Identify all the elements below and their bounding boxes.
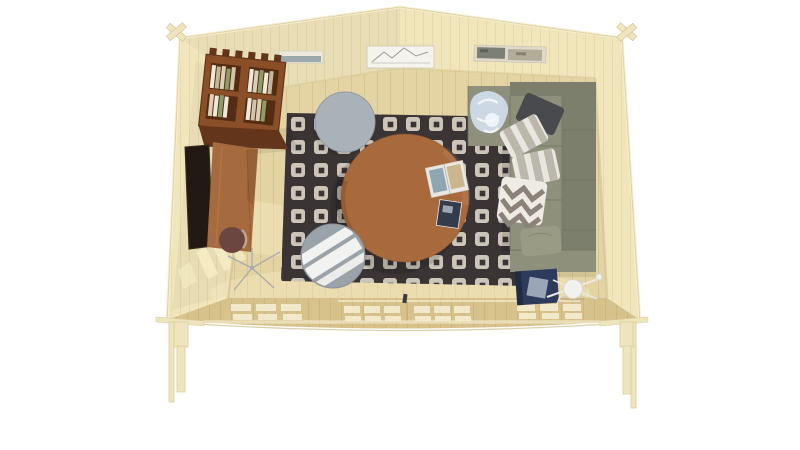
magazine-small [436, 200, 461, 229]
art-landscape-print [279, 51, 323, 63]
desk [207, 142, 258, 253]
sofa-back-right [562, 82, 596, 272]
corner-notch-right-icon [617, 23, 637, 42]
navy-side-table [515, 269, 559, 306]
pillow-chevron [496, 176, 548, 229]
art-mountain-sketch [367, 46, 434, 68]
leg-right [620, 322, 636, 408]
leg-left [169, 322, 188, 402]
render-canvas [0, 0, 800, 450]
lamp-globe [564, 280, 583, 299]
pillow-olive [520, 225, 563, 257]
corner-notch-left-icon [166, 23, 186, 42]
art-panorama-print [474, 45, 546, 63]
cabin-top-view [0, 0, 800, 450]
side-table [315, 92, 375, 152]
stool [219, 227, 245, 253]
